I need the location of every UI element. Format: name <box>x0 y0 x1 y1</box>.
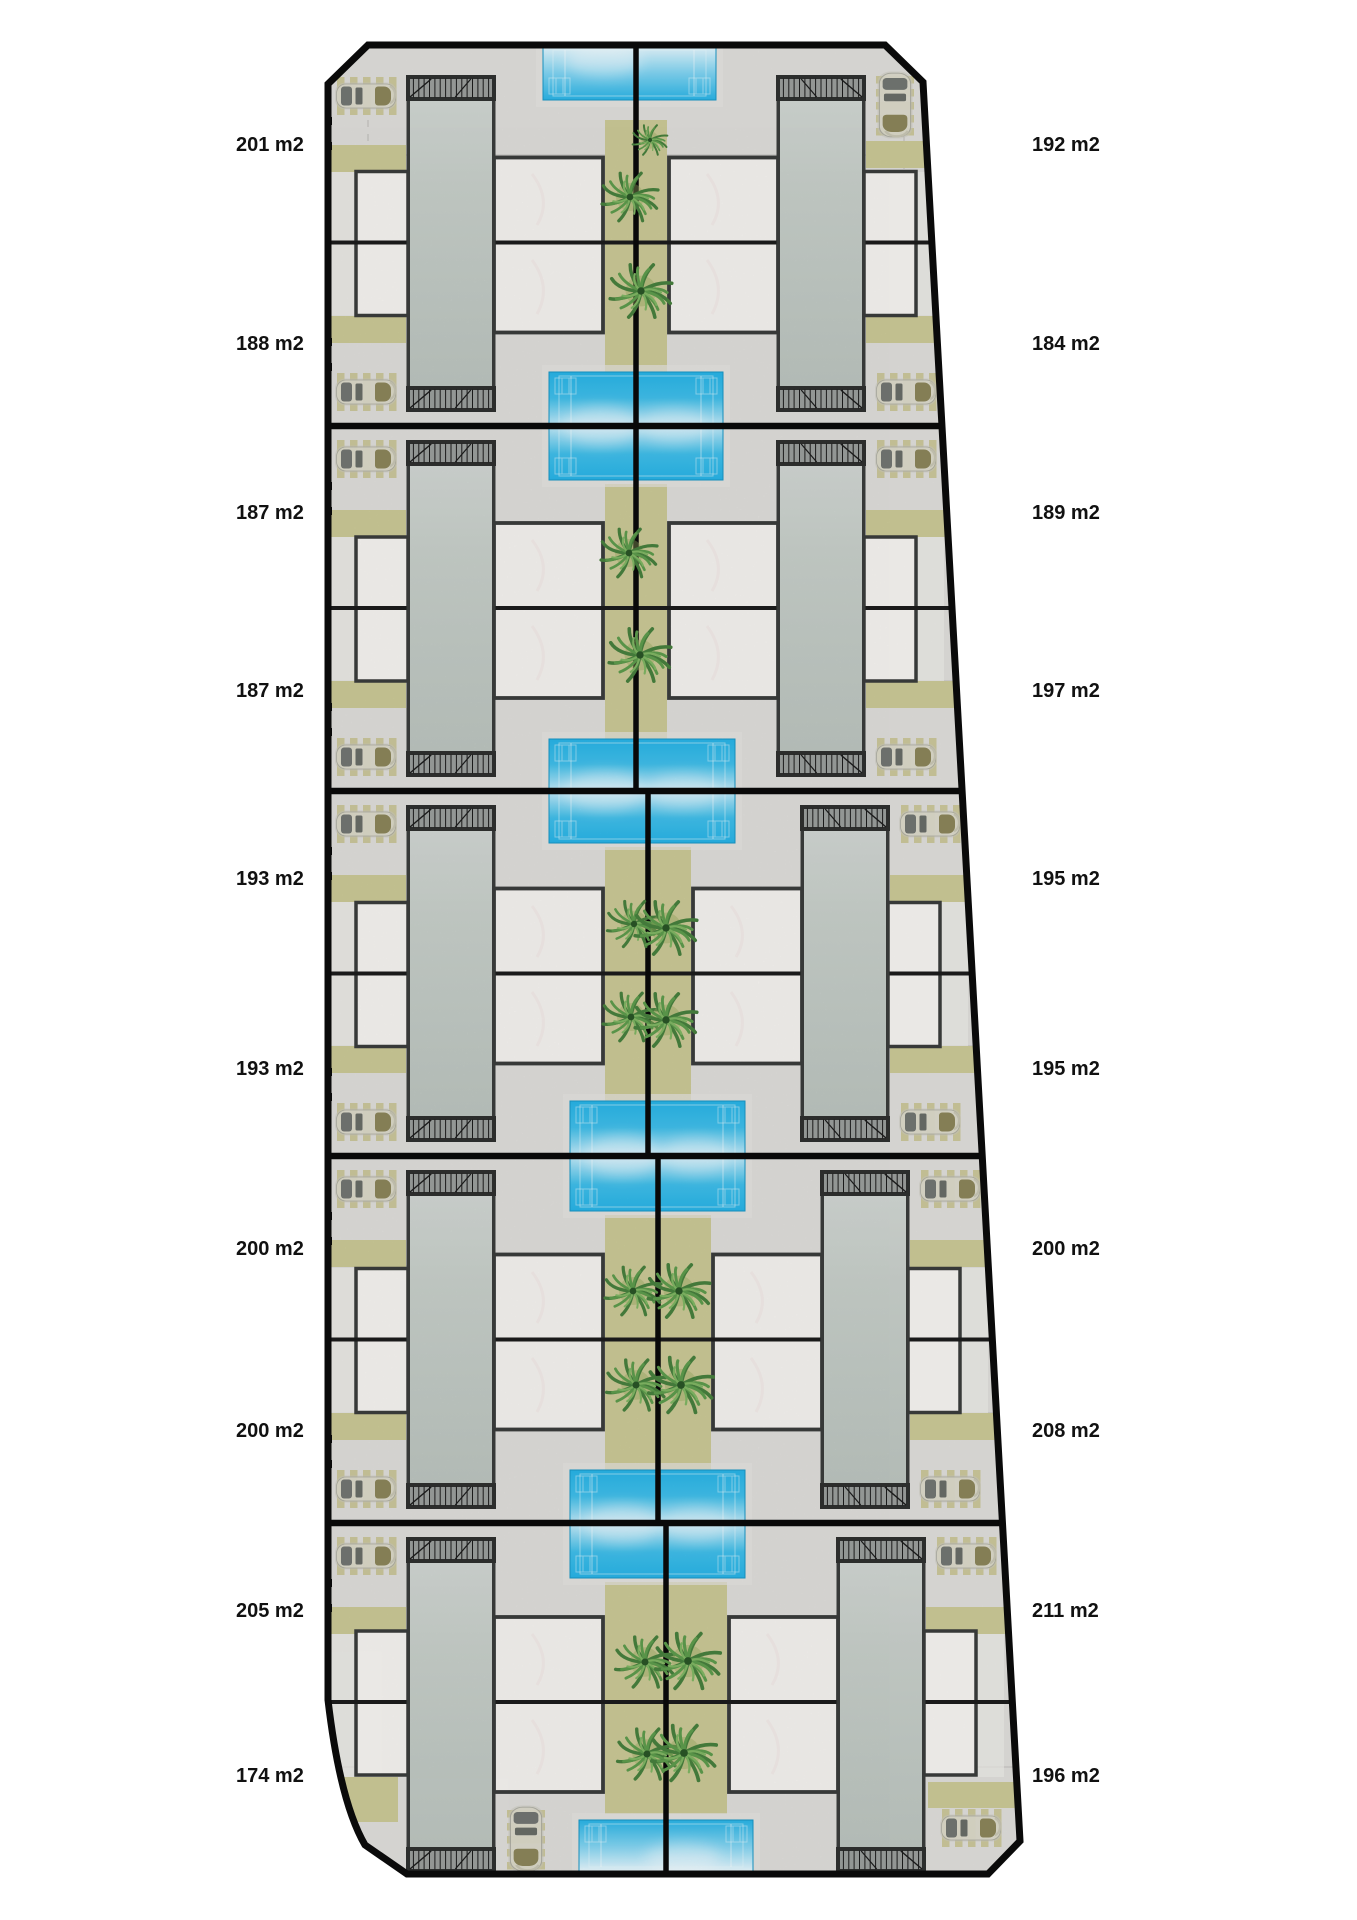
svg-text:189 m2: 189 m2 <box>1032 502 1100 524</box>
svg-text:187 m2: 187 m2 <box>236 680 304 702</box>
svg-text:193 m2: 193 m2 <box>236 868 304 890</box>
svg-text:187 m2: 187 m2 <box>236 502 304 524</box>
svg-text:200 m2: 200 m2 <box>236 1238 304 1260</box>
svg-text:174 m2: 174 m2 <box>236 1765 304 1787</box>
svg-text:195 m2: 195 m2 <box>1032 1058 1100 1080</box>
svg-text:200 m2: 200 m2 <box>236 1420 304 1442</box>
svg-text:197 m2: 197 m2 <box>1032 680 1100 702</box>
svg-text:201 m2: 201 m2 <box>236 134 304 156</box>
svg-text:205 m2: 205 m2 <box>236 1600 304 1622</box>
svg-text:193 m2: 193 m2 <box>236 1058 304 1080</box>
svg-text:211 m2: 211 m2 <box>1032 1600 1099 1622</box>
svg-text:184 m2: 184 m2 <box>1032 333 1100 355</box>
svg-text:208 m2: 208 m2 <box>1032 1420 1100 1442</box>
svg-text:200 m2: 200 m2 <box>1032 1238 1100 1260</box>
svg-text:195 m2: 195 m2 <box>1032 868 1100 890</box>
svg-text:188 m2: 188 m2 <box>236 333 304 355</box>
svg-text:192 m2: 192 m2 <box>1032 134 1100 156</box>
svg-text:196 m2: 196 m2 <box>1032 1765 1100 1787</box>
